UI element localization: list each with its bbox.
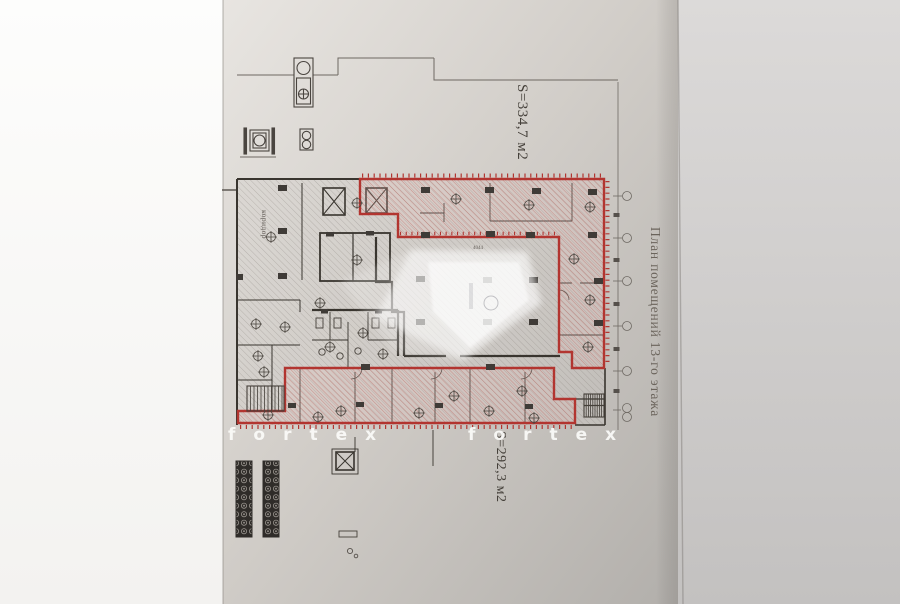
dimension-label: 4044 (473, 246, 484, 251)
ornament-strip (263, 461, 279, 537)
fortex-watermark: fortex (228, 425, 394, 445)
plan-title: План помещений 13-го этажа (648, 227, 663, 417)
photo-of-floor-plan: S=334,7 м2 S=292,3 м2 План помещений 13-… (0, 0, 900, 604)
area-label-top: S=334,7 м2 (514, 84, 530, 160)
floor-plan-svg: S=334,7 м2 S=292,3 м2 План помещений 13-… (0, 0, 900, 604)
red-zone-bottom (238, 368, 575, 427)
background-left (0, 0, 223, 604)
left-room-label: коридор (260, 210, 269, 239)
ornament-strip (236, 461, 252, 537)
fortex-watermark: fortex (468, 425, 634, 445)
shaft-box-icon (332, 449, 358, 474)
